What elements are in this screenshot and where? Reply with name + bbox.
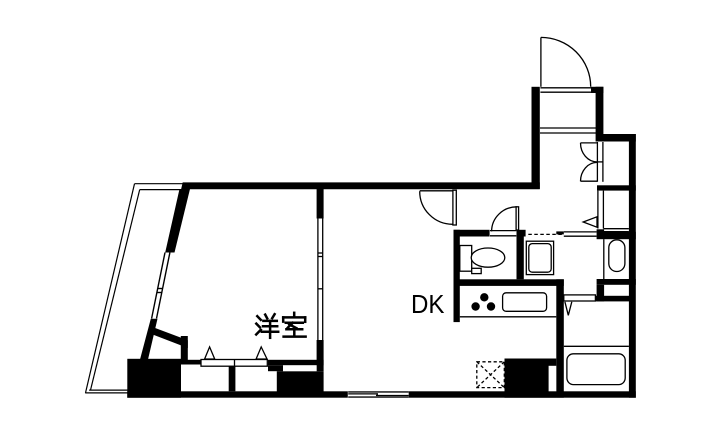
svg-text:DK: DK: [411, 289, 445, 319]
